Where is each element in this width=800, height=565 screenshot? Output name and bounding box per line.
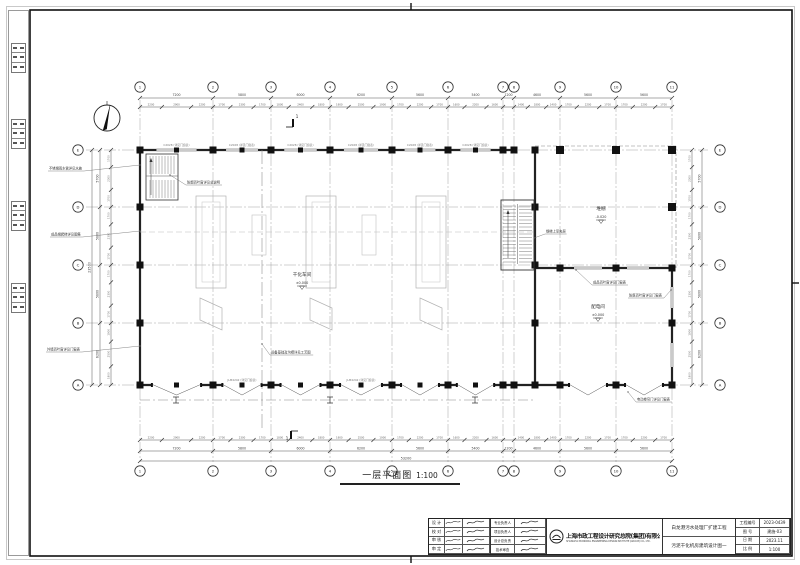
annotation-text: 钢梯上至夹层 (546, 229, 566, 234)
column (668, 146, 676, 154)
dim-text: 1900 (379, 103, 386, 107)
column (327, 147, 334, 154)
room-elevation: -0.020 (596, 215, 607, 219)
dim-text: 1700 (688, 212, 692, 219)
column (137, 204, 144, 211)
grid-bubble-label: 10 (614, 85, 619, 90)
window-tag: C2028 (详见门窗表) (163, 143, 189, 147)
equipment (362, 215, 376, 255)
dim-text: 53200 (401, 457, 412, 461)
dim-text: 1400 (518, 103, 525, 107)
dim-text: 1700 (688, 311, 692, 318)
dim-text: 1700 (688, 270, 692, 277)
dim-text: 1400 (518, 436, 525, 440)
drawing-scale: 1:100 (416, 471, 438, 480)
section-mark-label: 1 (296, 114, 299, 119)
equipment (312, 202, 330, 282)
column (557, 265, 564, 272)
dim-text: 1700 (259, 436, 266, 440)
dim-text: 1600 (453, 103, 460, 107)
door-jamb (339, 383, 341, 387)
leader-dot (261, 343, 262, 344)
sig-label: 审 核 (429, 537, 445, 546)
signature-scribble (466, 537, 486, 544)
dim-text: 2200 (641, 436, 648, 440)
window-tag: C2028 (详见门窗表) (229, 143, 255, 147)
grid-bubble-label: D (77, 205, 80, 210)
door-jamb (200, 383, 202, 387)
dim-text: 1700 (107, 270, 111, 277)
window-tag: C2028 (详见门窗表) (287, 143, 313, 147)
dim-text: 1700 (565, 103, 572, 107)
leader-dot (533, 237, 534, 238)
column (389, 147, 396, 154)
leader-dot (575, 269, 576, 270)
company-name-en: SHANGHAI MUNICIPAL ENGINEERING DESIGN IN… (566, 540, 660, 543)
dim-text: 5600 (416, 447, 424, 451)
column (137, 320, 144, 327)
door-jamb (261, 383, 263, 387)
company-logo-icon (549, 529, 564, 544)
grid-bubble-label: D (719, 205, 722, 210)
door-jamb (493, 383, 495, 387)
column (240, 148, 245, 153)
dim-text: 5400 (471, 447, 479, 451)
info-value: 1:100 (760, 545, 790, 554)
equipment-conveyor (310, 298, 332, 330)
dim-text: 2900 (173, 436, 180, 440)
dim-text: 2300 (107, 290, 111, 297)
dim-text: 5600 (416, 93, 424, 97)
dim-text: 1700 (688, 155, 692, 162)
dim-text: 2200 (585, 103, 592, 107)
dim-text: 2300 (107, 232, 111, 239)
dim-text: 1700 (397, 103, 404, 107)
sig-label: 审 定 (429, 545, 445, 554)
column (268, 382, 275, 389)
sig-label: 设 计 (429, 519, 445, 528)
dim-text: 2200 (472, 436, 479, 440)
door-tag: JLM4242 (详见门窗表) (346, 378, 376, 382)
dim-text: 1700 (565, 436, 572, 440)
window-tag: C2028 (详见门窗表) (407, 143, 433, 147)
dim-text: 1700 (688, 195, 692, 202)
door-jamb (438, 383, 440, 387)
grid-bubble-label: B (719, 321, 722, 326)
dim-text: 1700 (107, 195, 111, 202)
dim-text: 1700 (688, 253, 692, 260)
dim-text: 5800 (96, 290, 100, 298)
dim-text: 5600 (584, 93, 592, 97)
leader-dot (139, 164, 140, 165)
column (174, 148, 179, 153)
room-elevation: ±0.000 (296, 281, 309, 285)
leader-dot (670, 289, 671, 290)
dim-text: 6000 (296, 93, 304, 97)
dim-text: 7200 (172, 447, 180, 451)
signature-scribble (520, 528, 540, 535)
door-jamb (568, 383, 570, 387)
dim-text: 6200 (698, 350, 702, 358)
dim-text: 1800 (318, 103, 325, 107)
column (532, 204, 539, 211)
equipment-conveyor (420, 298, 442, 330)
signature-scribble (520, 546, 540, 553)
signature-scribble (445, 519, 462, 526)
dim-text: 2200 (472, 103, 479, 107)
dim-text: 5800 (96, 232, 100, 240)
dim-text: 1700 (621, 436, 628, 440)
dim-text: 6000 (296, 447, 304, 451)
info-value: 建施-03 (760, 528, 790, 537)
dim-text: 1700 (107, 311, 111, 318)
info-value: 2023-0439 (760, 519, 790, 528)
dim-text: 5800 (698, 232, 702, 240)
column (445, 382, 452, 389)
column (389, 382, 396, 389)
dim-text: 1900 (336, 436, 343, 440)
company-name-cn: 上海市政工程设计研究总院(集团)有限公司 (566, 531, 660, 540)
grid-bubble-label: A (77, 383, 80, 388)
equipment (416, 196, 446, 288)
leader-dot (169, 174, 170, 175)
grid-bubble-label: 11 (670, 85, 675, 90)
column (532, 147, 539, 154)
column (669, 265, 676, 272)
stair-arrow-head (507, 210, 510, 214)
signature-table-a: 设 计校 对审 核审 定 (429, 519, 491, 554)
dim-text: 1700 (218, 103, 225, 107)
column (137, 382, 144, 389)
room-label: 堆棚 (596, 205, 606, 212)
dim-text: 4600 (533, 93, 541, 97)
signature-scribble (466, 528, 486, 535)
dim-text: 23500 (88, 262, 92, 273)
dim-text: 1700 (107, 155, 111, 162)
dim-text: 2200 (199, 103, 206, 107)
dim-text: 5600 (584, 447, 592, 451)
column (532, 382, 539, 389)
column (240, 383, 245, 388)
info-value: 2023.11 (760, 537, 790, 546)
dim-text: 1900 (336, 103, 343, 107)
sig-label: 项目负责人 (491, 528, 515, 537)
door-jamb (151, 383, 153, 387)
grid-bubble-label: 10 (614, 469, 619, 474)
room-label: 配电间 (591, 303, 605, 310)
dim-text: 1900 (688, 329, 692, 336)
column (210, 147, 217, 154)
sig-label: 技术审查 (491, 545, 515, 554)
dim-text: 1800 (318, 436, 325, 440)
dim-text: 1900 (107, 329, 111, 336)
dim-text: 2900 (173, 103, 180, 107)
leader-line (576, 270, 592, 285)
door-jamb (221, 383, 223, 387)
door-tag: JLM4242 (详见门窗表) (227, 378, 257, 382)
dim-text: 1700 (604, 436, 611, 440)
signature-scribble (520, 519, 540, 526)
sig-label: 校 对 (429, 528, 445, 537)
column (298, 148, 303, 153)
project-name: 白龙港污水处理厂扩建工程 (663, 519, 735, 537)
column (500, 382, 507, 389)
sig-label: 设计总负责 (491, 537, 515, 546)
dim-text: 2200 (199, 436, 206, 440)
north-arrow-icon (94, 101, 120, 131)
dim-text: 2400 (297, 436, 304, 440)
column (556, 146, 564, 154)
column (511, 382, 518, 389)
elevation-symbol (300, 286, 305, 290)
column (418, 383, 423, 388)
leader-line (262, 344, 270, 355)
column (174, 383, 179, 388)
dim-text: 1200 (504, 447, 512, 451)
column (418, 148, 423, 153)
dim-text: 1600 (453, 436, 460, 440)
grid-bubble-label: A (719, 383, 722, 388)
dim-text: 2500 (688, 350, 692, 357)
dim-text: 2300 (239, 436, 246, 440)
company-cell: 上海市政工程设计研究总院(集团)有限公司 SHANGHAI MUNICIPAL … (547, 519, 663, 554)
equipment (422, 202, 440, 282)
signature-scribble (445, 537, 462, 544)
dim-text: 1700 (397, 436, 404, 440)
door-opening (570, 383, 607, 387)
leader-dot (627, 391, 628, 392)
signature-scribble (445, 528, 462, 535)
door-jamb (606, 383, 608, 387)
dim-text: 6200 (357, 93, 365, 97)
info-label: 日 期 (736, 537, 760, 546)
dim-text: 5400 (471, 93, 479, 97)
leader-dot (139, 230, 140, 231)
column (359, 383, 364, 388)
equipment (252, 215, 266, 255)
column (298, 383, 303, 388)
column (359, 148, 364, 153)
door-jamb (624, 383, 626, 387)
dim-text: 2300 (107, 175, 111, 182)
dim-text: 2400 (297, 103, 304, 107)
door-jamb (280, 383, 282, 387)
column (557, 382, 564, 389)
signature-scribble (466, 519, 486, 526)
column (137, 262, 144, 269)
info-label: 工程编号 (736, 519, 760, 528)
dim-text: 6200 (96, 350, 100, 358)
dim-text: 1800 (277, 103, 284, 107)
column (327, 382, 334, 389)
door-jamb (400, 383, 402, 387)
column (669, 382, 676, 389)
room-elevation: ±0.000 (592, 313, 605, 317)
annotation-text: 不锈钢雨水管详见水施 (49, 166, 83, 171)
grid-bubble-label: C (719, 263, 722, 268)
drawing-title: 一层平面图 1:100 (340, 468, 460, 485)
door-jamb (662, 383, 664, 387)
signature-scribble (466, 546, 486, 553)
info-grid: 工程编号2023-0439图 号建施-03日 期2023.11比 例1:100 (736, 519, 790, 554)
annotation-text: 设备基础及沟槽详见工艺图 (271, 350, 311, 355)
title-block: 设 计校 对审 核审 定 专业负责人项目负责人设计总负责技术审查 上海市政工程设… (428, 518, 791, 555)
column (613, 265, 620, 272)
dim-text: 1700 (259, 103, 266, 107)
dim-text: 7200 (172, 93, 180, 97)
dim-text: 5600 (640, 93, 648, 97)
dim-text: 6200 (357, 447, 365, 451)
column (613, 382, 620, 389)
equipment (202, 202, 220, 282)
column (500, 147, 507, 154)
window-tag: C2028 (详见门窗表) (462, 143, 488, 147)
elevation-symbol (596, 318, 601, 322)
drawing-title-text: 一层平面图 (362, 471, 412, 481)
leader-line (628, 392, 636, 402)
grid-bubble-label: B (77, 321, 80, 326)
project-cell: 白龙港污水处理厂扩建工程 污泥干化机房建筑设计图一 (663, 519, 736, 554)
elevation-symbol (599, 220, 604, 224)
dim-text: 2500 (358, 103, 365, 107)
dim-text: 2300 (688, 232, 692, 239)
annotation-text: 防腐百叶窗详见门窗表 (629, 293, 663, 298)
room-label: 干化车间 (293, 271, 312, 278)
sheet-name: 污泥干化机房建筑设计图一 (663, 537, 735, 554)
dim-text: 1700 (436, 436, 443, 440)
dim-text: 2200 (641, 103, 648, 107)
dim-text: 2200 (148, 436, 155, 440)
dim-text: 1700 (436, 103, 443, 107)
dim-text: 2300 (688, 175, 692, 182)
dim-text: 1200 (504, 93, 512, 97)
dim-text: 1700 (621, 103, 628, 107)
column (511, 147, 518, 154)
dim-text: 1700 (218, 436, 225, 440)
dim-text: 1400 (550, 103, 557, 107)
column (445, 147, 452, 154)
column (268, 147, 275, 154)
annotation-text: 外墙百叶窗详见门窗表 (47, 347, 81, 352)
column (473, 383, 478, 388)
column (669, 320, 676, 327)
column (532, 262, 539, 269)
dim-text: 1400 (550, 436, 557, 440)
dim-text: 5800 (238, 447, 246, 451)
dim-text: 1700 (604, 103, 611, 107)
leader-line (664, 290, 671, 298)
info-label: 图 号 (736, 528, 760, 537)
annotation-text: 成品钢爬梯详见图集 (51, 232, 81, 237)
dim-text: 2200 (417, 103, 424, 107)
dim-text: 5800 (698, 290, 702, 298)
drawing-sheet: 11223344556677889910101111EEDDCCBBAA7200… (0, 0, 800, 565)
dim-text: 1800 (534, 436, 541, 440)
equipment (196, 196, 226, 288)
annotation-text: 成品百叶窗详见门窗表 (593, 280, 627, 285)
column (668, 203, 676, 211)
grid-bubble-label: 11 (670, 469, 675, 474)
dim-text: 1600 (491, 436, 498, 440)
dim-text: 2200 (417, 436, 424, 440)
leader-dot (139, 345, 140, 346)
grid-bubble-label: C (77, 263, 80, 268)
door-opening (626, 383, 663, 387)
equipment-conveyor (200, 298, 222, 330)
door-jamb (319, 383, 321, 387)
annotation-text: 防烟百叶窗详见总说明 (187, 180, 221, 185)
dim-text: 5600 (640, 447, 648, 451)
dim-text: 2500 (358, 436, 365, 440)
dim-text: 2300 (688, 290, 692, 297)
dim-text: 1900 (688, 372, 692, 379)
dim-text: 1800 (277, 436, 284, 440)
column (210, 382, 217, 389)
dim-text: 2200 (148, 103, 155, 107)
dim-text: 1700 (660, 436, 667, 440)
signature-table-b: 专业负责人项目负责人设计总负责技术审查 (491, 519, 547, 554)
dim-text: 1800 (534, 103, 541, 107)
dim-text: 4600 (533, 447, 541, 451)
dim-text: 2500 (107, 350, 111, 357)
dim-text: 2300 (239, 103, 246, 107)
dim-text: 2200 (585, 436, 592, 440)
dim-text: 1900 (107, 372, 111, 379)
dim-text: 5700 (698, 174, 702, 182)
dim-text: 1700 (107, 253, 111, 260)
dim-text: 5800 (238, 93, 246, 97)
signature-scribble (445, 546, 462, 553)
info-label: 比 例 (736, 545, 760, 554)
dim-text: 1700 (660, 103, 667, 107)
column (612, 146, 620, 154)
door-jamb (456, 383, 458, 387)
column (473, 148, 478, 153)
dim-text: 1600 (491, 103, 498, 107)
window-tag: C2028 (详见门窗表) (348, 143, 374, 147)
section-mark-label: 1 (286, 436, 289, 441)
sig-label: 专业负责人 (491, 519, 515, 528)
dim-text: 5700 (96, 174, 100, 182)
column (532, 320, 539, 327)
annotation-text: 电动卷帘门详见门窗表 (637, 397, 671, 402)
dim-text: 1900 (379, 436, 386, 440)
door-jamb (381, 383, 383, 387)
dim-text: 1700 (107, 212, 111, 219)
column (137, 147, 144, 154)
signature-scribble (520, 537, 540, 544)
